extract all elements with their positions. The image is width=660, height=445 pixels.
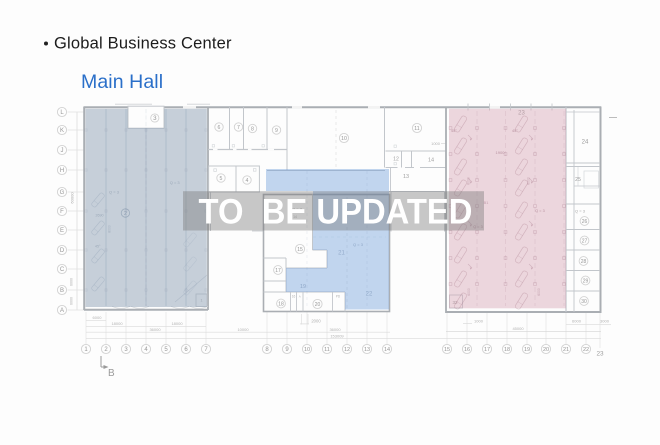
svg-text:3000: 3000 xyxy=(600,318,610,323)
svg-text:Q = 3: Q = 3 xyxy=(575,209,586,214)
svg-text:16: 16 xyxy=(292,295,296,299)
svg-text:6000: 6000 xyxy=(467,288,471,296)
svg-text:11: 11 xyxy=(324,347,330,353)
svg-text:Q = 3: Q = 3 xyxy=(170,180,181,185)
svg-text:13: 13 xyxy=(364,347,370,353)
svg-text:15: 15 xyxy=(444,347,450,353)
svg-text:27: 27 xyxy=(582,238,588,244)
svg-text:10: 10 xyxy=(304,347,310,353)
svg-text:Global Business Center: Global Business Center xyxy=(54,35,232,53)
svg-text:J: J xyxy=(61,148,64,154)
svg-text:6000: 6000 xyxy=(70,297,74,305)
svg-text:20: 20 xyxy=(543,347,549,353)
svg-text:D: D xyxy=(60,248,65,254)
svg-text:6000: 6000 xyxy=(93,315,103,320)
svg-text:15: 15 xyxy=(297,247,303,253)
svg-text:153009: 153009 xyxy=(330,333,344,338)
svg-text:9: 9 xyxy=(275,128,278,134)
svg-text:F: F xyxy=(60,209,64,215)
svg-text:16: 16 xyxy=(464,347,470,353)
svg-text:6000: 6000 xyxy=(572,318,582,323)
svg-text:1000: 1000 xyxy=(474,318,484,323)
svg-text:21: 21 xyxy=(338,251,345,257)
svg-text:14: 14 xyxy=(384,347,390,353)
svg-text:TO BE UPDATED: TO BE UPDATED xyxy=(199,193,473,232)
svg-text:8000: 8000 xyxy=(108,225,112,233)
svg-text:8: 8 xyxy=(251,126,254,132)
svg-text:B1: B1 xyxy=(484,201,489,205)
svg-text:36000: 36000 xyxy=(149,327,161,332)
svg-text:20: 20 xyxy=(315,302,321,308)
svg-text:29: 29 xyxy=(583,278,589,284)
svg-text:6000: 6000 xyxy=(526,177,530,185)
svg-text:PD: PD xyxy=(336,295,341,299)
svg-text:Main Hall: Main Hall xyxy=(81,71,163,93)
svg-text:26: 26 xyxy=(582,219,588,225)
svg-text:G: G xyxy=(60,190,65,196)
svg-text:A: A xyxy=(60,308,64,314)
svg-text:17: 17 xyxy=(484,347,490,353)
svg-text:H: H xyxy=(60,168,64,174)
svg-text:13: 13 xyxy=(403,174,409,180)
svg-text:Q = 3: Q = 3 xyxy=(535,209,544,213)
svg-text:B: B xyxy=(60,288,64,294)
svg-text:10000: 10000 xyxy=(237,327,249,332)
svg-text:2000: 2000 xyxy=(311,318,321,323)
svg-text:45°: 45° xyxy=(95,244,101,248)
svg-text:K: K xyxy=(60,128,64,134)
svg-text:45000: 45000 xyxy=(512,326,524,331)
svg-text:2: 2 xyxy=(124,211,127,217)
svg-text:18000: 18000 xyxy=(111,321,123,326)
svg-text:17: 17 xyxy=(275,268,281,274)
svg-text:7: 7 xyxy=(237,125,240,131)
svg-text:22: 22 xyxy=(583,347,589,353)
svg-text:3: 3 xyxy=(153,115,157,122)
svg-text:6: 6 xyxy=(218,125,221,131)
svg-text:24: 24 xyxy=(582,140,589,146)
svg-text:12: 12 xyxy=(393,157,399,163)
svg-text:1900: 1900 xyxy=(496,150,506,155)
svg-text:11: 11 xyxy=(414,126,419,132)
svg-text:10: 10 xyxy=(341,136,347,142)
svg-text:21: 21 xyxy=(563,347,569,353)
svg-text:45°: 45° xyxy=(512,129,518,133)
svg-text:45°: 45° xyxy=(451,129,457,133)
svg-text:18: 18 xyxy=(504,347,510,353)
svg-text:6000: 6000 xyxy=(537,288,541,296)
svg-text:19: 19 xyxy=(300,284,306,290)
svg-text:2690: 2690 xyxy=(96,214,104,218)
svg-text:5: 5 xyxy=(220,176,223,182)
svg-text:C: C xyxy=(60,267,65,273)
svg-text:6000: 6000 xyxy=(467,177,471,185)
svg-text:A: A xyxy=(299,295,301,299)
svg-text:Q = 3: Q = 3 xyxy=(109,189,120,194)
svg-text:6000: 6000 xyxy=(70,278,74,286)
svg-text:B: B xyxy=(108,368,115,379)
svg-text:60000: 60000 xyxy=(70,192,75,204)
svg-text:12: 12 xyxy=(344,347,350,353)
svg-text:23: 23 xyxy=(596,351,604,358)
svg-text:14: 14 xyxy=(428,158,434,164)
svg-text:30: 30 xyxy=(581,299,587,305)
svg-text:E: E xyxy=(60,228,64,234)
svg-text:Q = 3: Q = 3 xyxy=(353,242,364,247)
svg-text:18: 18 xyxy=(278,301,284,307)
svg-text:4: 4 xyxy=(246,178,249,184)
svg-text:18000: 18000 xyxy=(171,321,183,326)
svg-text:28: 28 xyxy=(581,259,587,265)
svg-text:19: 19 xyxy=(524,347,530,353)
svg-text:36000: 36000 xyxy=(329,327,341,332)
svg-text:1000: 1000 xyxy=(431,141,441,146)
